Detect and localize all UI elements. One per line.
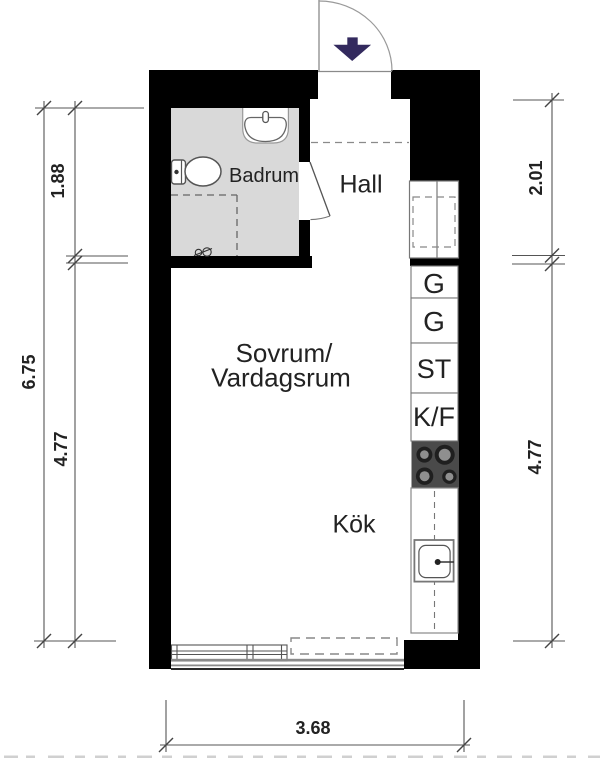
svg-text:6.75: 6.75 [19, 354, 39, 389]
svg-text:2.01: 2.01 [526, 160, 546, 195]
svg-text:Badrum: Badrum [229, 165, 299, 187]
svg-text:Hall: Hall [339, 171, 382, 199]
svg-text:G: G [423, 268, 445, 299]
svg-text:3.68: 3.68 [295, 718, 330, 738]
svg-text:4.77: 4.77 [525, 439, 545, 474]
svg-text:Kök: Kök [332, 511, 376, 539]
svg-text:1.88: 1.88 [48, 163, 68, 198]
svg-text:K/F: K/F [413, 402, 455, 432]
svg-text:4.77: 4.77 [51, 431, 71, 466]
svg-text:Vardagsrum: Vardagsrum [211, 363, 351, 393]
svg-text:G: G [423, 306, 445, 337]
svg-text:ST: ST [417, 354, 452, 384]
